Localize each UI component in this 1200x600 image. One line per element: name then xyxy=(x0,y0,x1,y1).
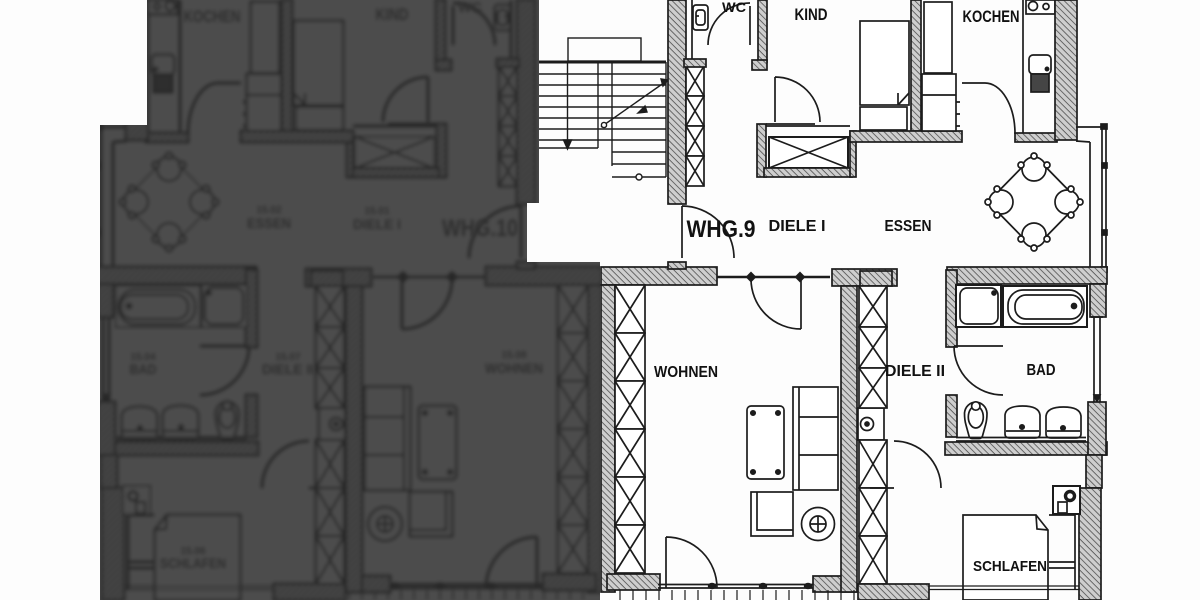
svg-text:WC: WC xyxy=(722,0,746,15)
svg-text:DIELE II: DIELE II xyxy=(885,363,945,380)
svg-text:WHG.9: WHG.9 xyxy=(687,216,756,243)
svg-text:KIND: KIND xyxy=(795,5,828,24)
svg-text:SCHLAFEN: SCHLAFEN xyxy=(973,558,1047,575)
svg-text:ESSEN: ESSEN xyxy=(885,218,932,235)
svg-text:DIELE I: DIELE I xyxy=(769,218,826,235)
svg-text:WOHNEN: WOHNEN xyxy=(654,364,718,381)
svg-text:BAD: BAD xyxy=(1027,362,1056,379)
svg-text:KOCHEN: KOCHEN xyxy=(963,7,1020,26)
